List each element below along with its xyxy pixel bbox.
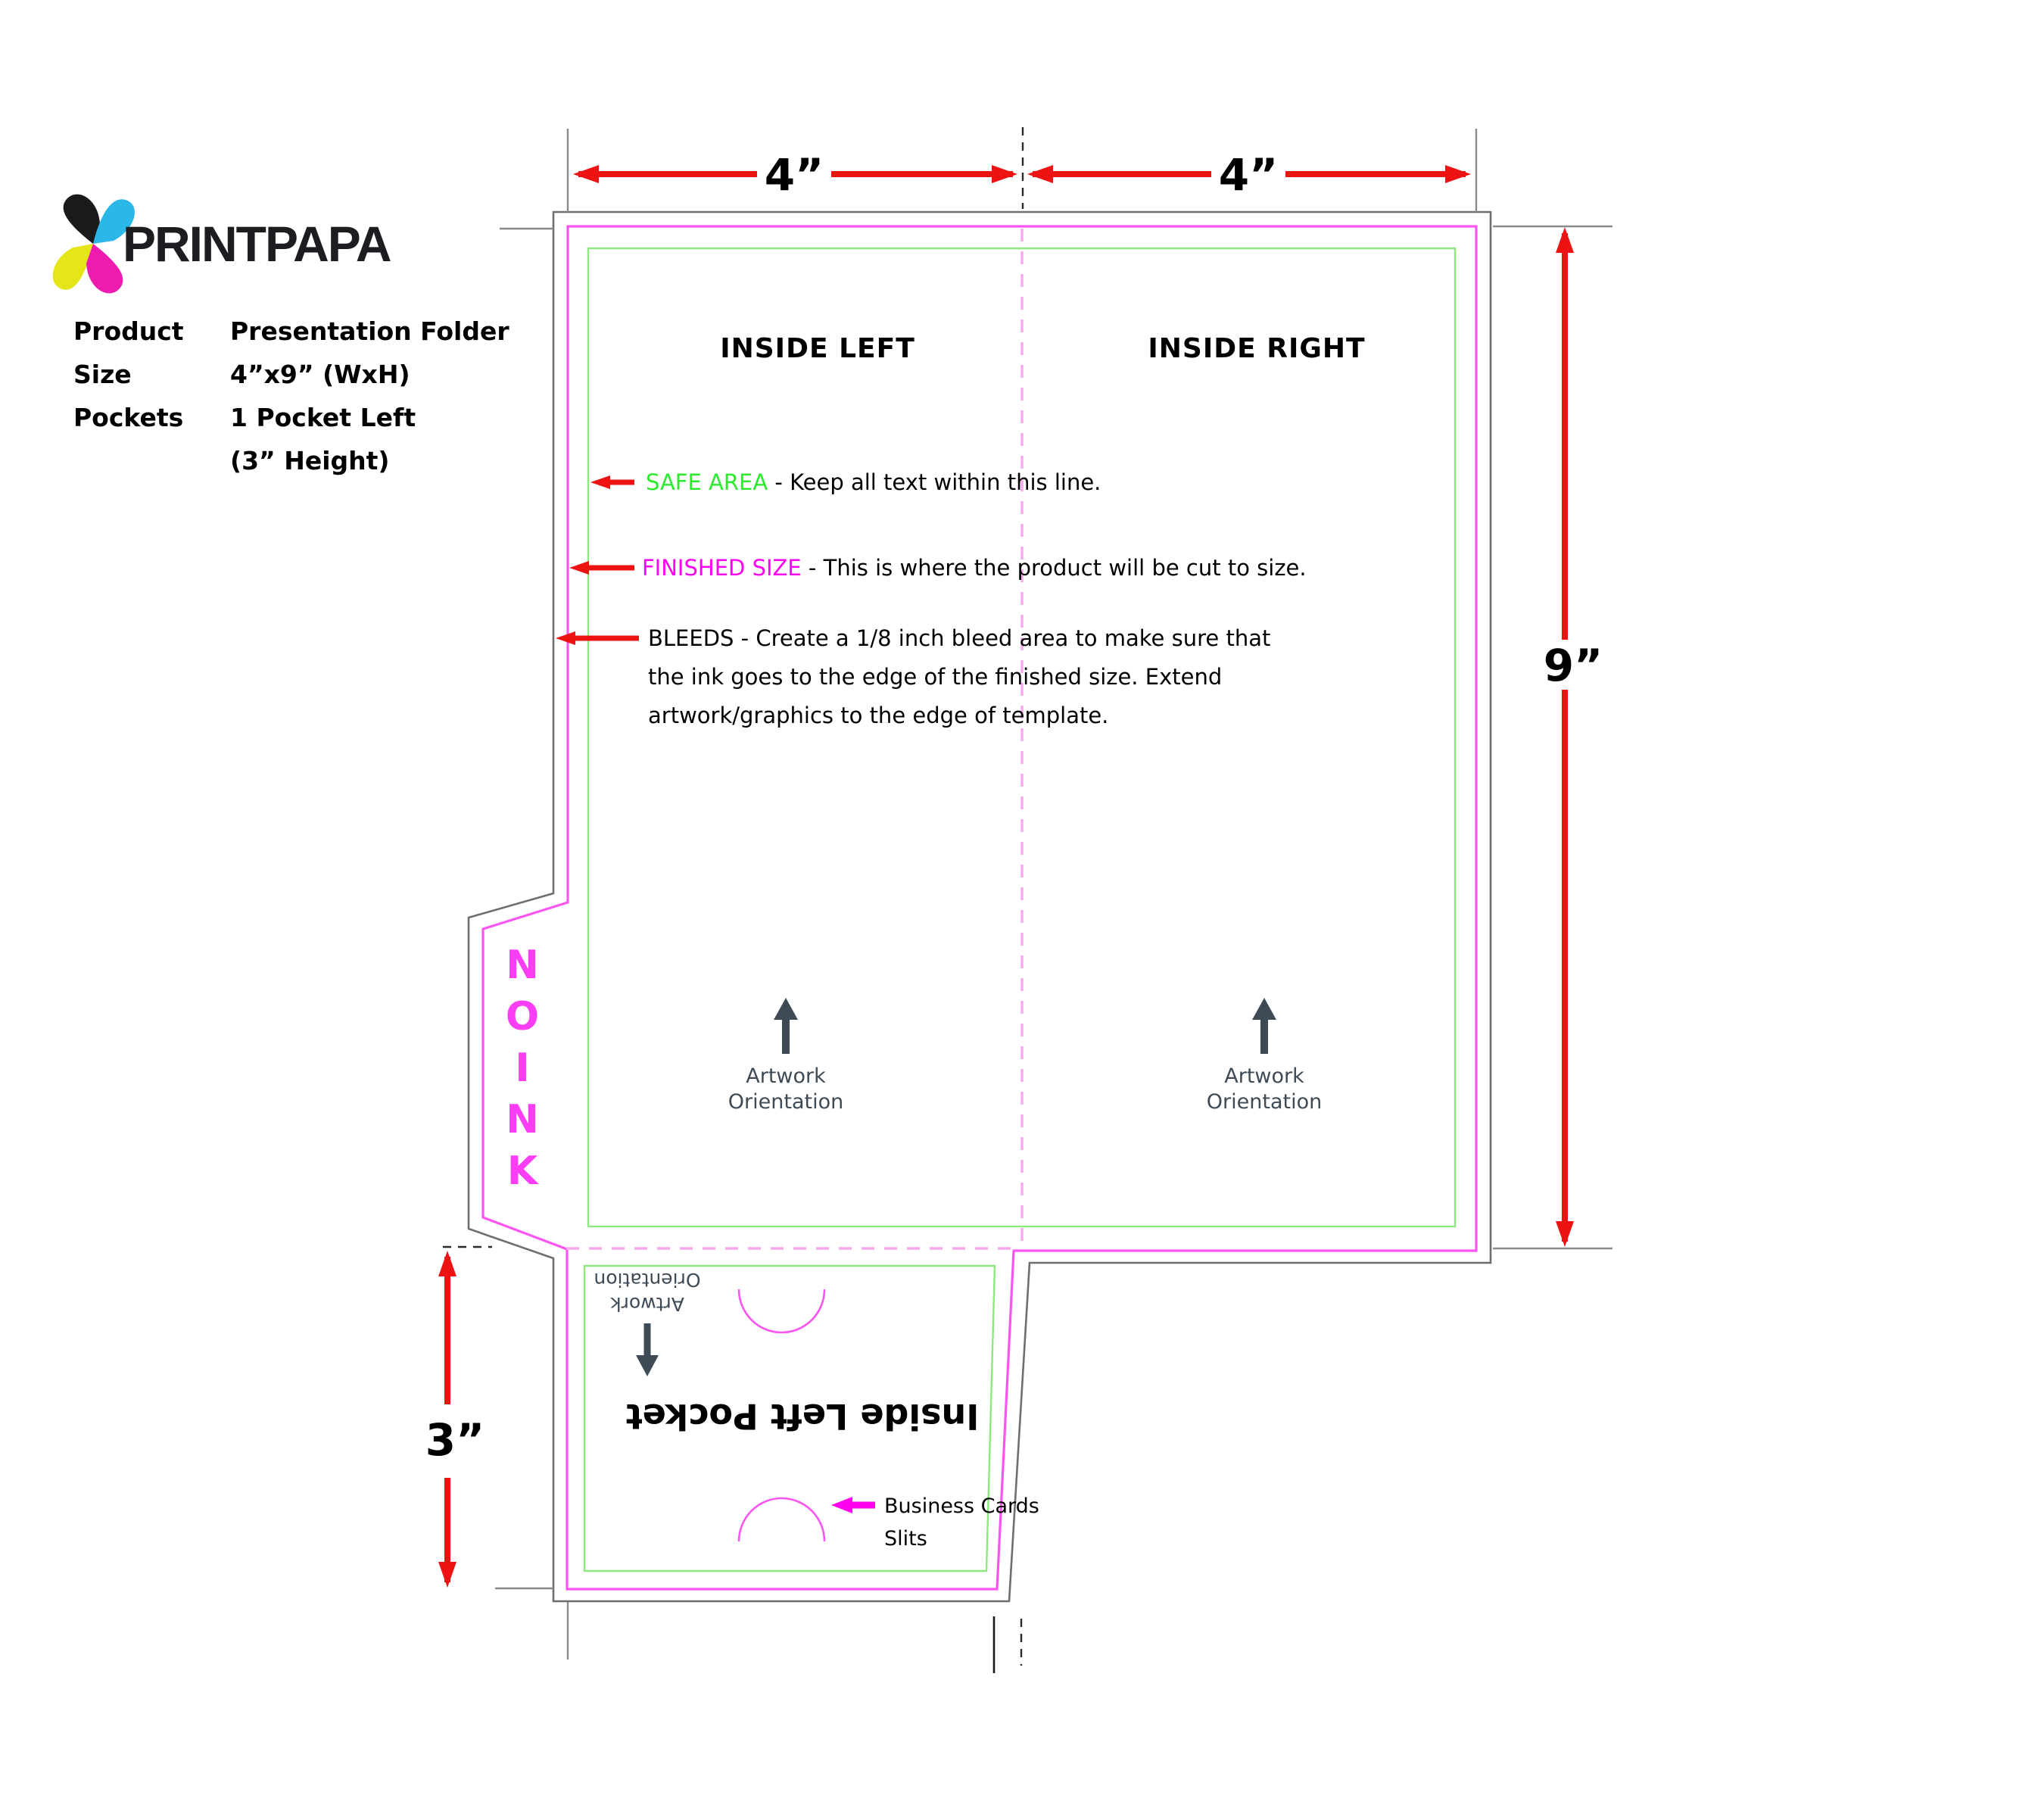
dimension-pocket: 3” bbox=[425, 1251, 485, 1588]
dim-pocket-label: 3” bbox=[425, 1414, 485, 1466]
extension-lines bbox=[443, 127, 1612, 1673]
bleeds-text-line1: BLEEDS - Create a 1/8 inch bleed area to… bbox=[648, 625, 1270, 651]
business-cards-slits-annotation: Business Cards Slits bbox=[831, 1494, 1039, 1551]
up-arrow-stem bbox=[782, 1020, 790, 1054]
business-card-slit-bottom bbox=[739, 1498, 824, 1541]
pocket-title: Inside Left Pocket bbox=[626, 1396, 980, 1437]
up-arrow-icon bbox=[774, 998, 798, 1020]
arrowhead-down-icon bbox=[438, 1562, 456, 1588]
finished-size-text: - This is where the product will be cut … bbox=[802, 555, 1307, 581]
svg-text:N: N bbox=[506, 943, 539, 988]
business-card-slit-top bbox=[739, 1289, 824, 1332]
svg-text:Artwork: Artwork bbox=[1224, 1064, 1304, 1088]
slits-text-line1: Business Cards bbox=[884, 1494, 1039, 1518]
safe-area-text: - Keep all text within this line. bbox=[768, 469, 1101, 495]
arrowhead-right-icon bbox=[1445, 165, 1471, 183]
logo-petal-black bbox=[64, 195, 100, 244]
arrowhead-right-icon bbox=[992, 165, 1017, 183]
bleeds-annotation: BLEEDS - Create a 1/8 inch bleed area to… bbox=[556, 625, 1270, 728]
svg-text:SAFE AREA - Keep all text with: SAFE AREA - Keep all text within this li… bbox=[646, 469, 1101, 495]
annotation-arrow-icon bbox=[569, 561, 589, 575]
arrowhead-down-icon bbox=[1556, 1221, 1574, 1247]
finished-size-label: FINISHED SIZE bbox=[642, 555, 802, 581]
svg-text:I: I bbox=[515, 1046, 529, 1091]
annotation-arrow-icon bbox=[556, 631, 575, 645]
svg-text:N: N bbox=[506, 1097, 539, 1142]
dimension-right: 9” bbox=[1537, 227, 1609, 1247]
artwork-orientation-left: Artwork Orientation bbox=[728, 998, 843, 1114]
svg-text:Orientation: Orientation bbox=[1207, 1090, 1322, 1114]
arrowhead-up-icon bbox=[438, 1251, 456, 1276]
inside-left-title: INSIDE LEFT bbox=[720, 333, 915, 364]
logo-petal-magenta bbox=[86, 244, 123, 293]
printpapa-logo: PRINTPAPA bbox=[53, 195, 391, 294]
bleeds-text-line3: artwork/graphics to the edge of template… bbox=[648, 703, 1108, 728]
down-arrow-icon bbox=[636, 1355, 659, 1376]
down-arrow-stem bbox=[644, 1323, 651, 1355]
arrowhead-left-icon bbox=[1027, 165, 1053, 183]
size-label: Size bbox=[73, 360, 132, 389]
finished-size-annotation: FINISHED SIZE - This is where the produc… bbox=[569, 555, 1307, 581]
svg-text:Orientation: Orientation bbox=[594, 1269, 700, 1291]
svg-text:O: O bbox=[506, 994, 539, 1039]
bleeds-text-line2: the ink goes to the edge of the finished… bbox=[648, 664, 1222, 690]
svg-text:Orientation: Orientation bbox=[728, 1090, 843, 1114]
pockets-value-2: (3” Height) bbox=[230, 446, 390, 475]
inside-right-title: INSIDE RIGHT bbox=[1148, 333, 1365, 364]
product-label: Product bbox=[73, 316, 184, 346]
template-diagram: PRINTPAPA Product Presentation Folder Si… bbox=[0, 0, 2044, 1817]
up-arrow-stem bbox=[1260, 1020, 1268, 1054]
dim-top-left-label: 4” bbox=[765, 149, 824, 201]
annotation-arrow-icon bbox=[590, 475, 610, 489]
no-ink-label: N O I N K bbox=[506, 943, 539, 1194]
slits-text-line2: Slits bbox=[884, 1527, 927, 1551]
up-arrow-icon bbox=[1252, 998, 1276, 1020]
svg-text:FINISHED SIZE - This is where: FINISHED SIZE - This is where the produc… bbox=[642, 555, 1307, 581]
artwork-orientation-right: Artwork Orientation bbox=[1207, 998, 1322, 1114]
finished-size-outline bbox=[483, 226, 1476, 1589]
product-value: Presentation Folder bbox=[230, 316, 509, 346]
artwork-orientation-pocket: Artwork Orientation bbox=[594, 1269, 700, 1376]
brand-name: PRINTPAPA bbox=[123, 216, 391, 272]
svg-text:Artwork: Artwork bbox=[610, 1293, 684, 1315]
bleed-outline bbox=[469, 212, 1491, 1601]
arrowhead-left-icon bbox=[573, 165, 599, 183]
safe-area-label: SAFE AREA bbox=[646, 469, 768, 495]
svg-text:K: K bbox=[507, 1148, 539, 1194]
dimension-top-left: 4” bbox=[573, 145, 1017, 201]
pockets-value: 1 Pocket Left bbox=[230, 403, 416, 432]
dim-top-right-label: 4” bbox=[1219, 149, 1278, 201]
pockets-label: Pockets bbox=[73, 403, 183, 432]
size-value: 4”x9” (WxH) bbox=[230, 360, 410, 389]
product-info: Product Presentation Folder Size 4”x9” (… bbox=[73, 316, 509, 475]
slits-arrow-icon bbox=[831, 1497, 852, 1513]
dim-right-label: 9” bbox=[1544, 640, 1603, 691]
safe-area-annotation: SAFE AREA - Keep all text within this li… bbox=[590, 469, 1101, 495]
dimension-top-right: 4” bbox=[1027, 145, 1471, 201]
svg-text:Artwork: Artwork bbox=[746, 1064, 826, 1088]
arrowhead-up-icon bbox=[1556, 227, 1574, 253]
printpapa-folder-template-page: PRINTPAPA Product Presentation Folder Si… bbox=[0, 0, 2044, 1817]
